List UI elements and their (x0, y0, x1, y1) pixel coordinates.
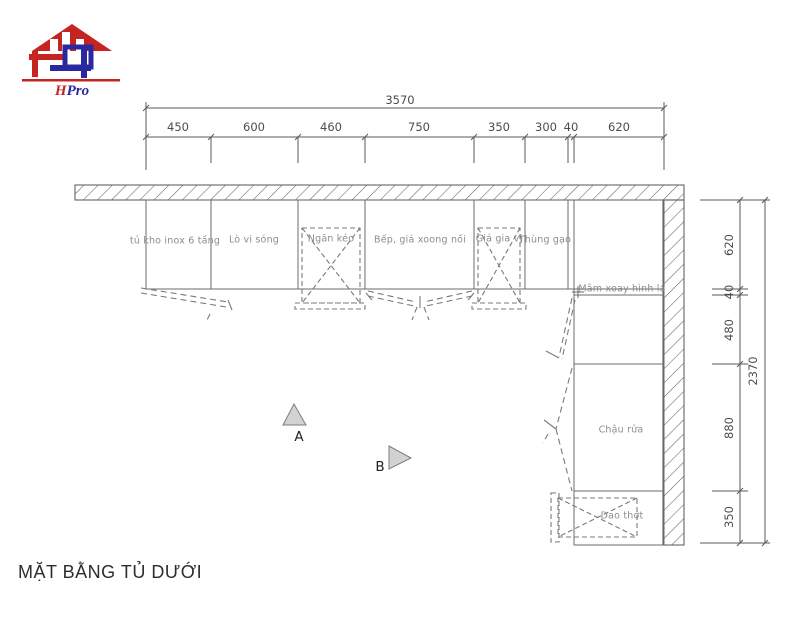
dim-right-seg-40: 40 (722, 285, 736, 300)
dimension-ticks (143, 105, 667, 140)
door-swing-lines (141, 288, 575, 491)
cabinet-label-chau-rua: Chậu rửa (599, 425, 644, 436)
cabinet-label-dao-thot: Dao thớt (601, 511, 644, 522)
hpro-house-icon (22, 24, 120, 82)
hpro-logo-text: HPro (54, 83, 89, 99)
dim-right-seg-880: 880 (722, 417, 736, 439)
cabinet-label-gia-gia-vi: Giá gia vị (476, 234, 523, 245)
cabinet-label-bep: Bếp, giá xoong nồi (374, 235, 466, 246)
marker-a-label: A (294, 429, 303, 445)
cabinet-label-tu-kho: tủ kho inox 6 tầng (130, 236, 220, 247)
blueprint-canvas: HPro tủ kho inox 6 tầng Lò vi sóng Ngăn … (0, 0, 800, 635)
marker-b-triangle (389, 446, 411, 469)
dim-top-total: 3570 (385, 93, 414, 107)
cabinet-label-thung-gao: Thùng gạo (519, 235, 571, 246)
dim-top-seg-600: 600 (243, 120, 265, 134)
dim-top-seg-450: 450 (167, 120, 189, 134)
dim-top-seg-40: 40 (564, 120, 579, 134)
dim-top-seg-620: 620 (608, 120, 630, 134)
marker-b-label: B (375, 459, 384, 475)
dim-right-total: 2370 (746, 356, 760, 385)
dim-top-seg-300: 300 (535, 120, 557, 134)
logo-text-pro: Pro (67, 83, 90, 99)
dim-right-seg-480: 480 (722, 319, 736, 341)
dim-right-seg-620: 620 (722, 234, 736, 256)
marker-a-triangle (283, 404, 306, 425)
dim-right-seg-350: 350 (722, 506, 736, 528)
dim-top-seg-350: 350 (488, 120, 510, 134)
dashed-drawer-boxes (295, 228, 637, 542)
top-dimension-lines (143, 102, 667, 170)
top-wall (75, 185, 684, 200)
right-wall (663, 200, 684, 545)
cabinet-outlines (146, 200, 664, 545)
hpro-logo: HPro (20, 13, 130, 103)
cabinet-label-ngan-keo: Ngăn kéo (308, 234, 354, 245)
dim-top-seg-460: 460 (320, 120, 342, 134)
cabinet-label-lo-vi-song: Lò vi sóng (229, 235, 279, 246)
dim-top-seg-750: 750 (408, 120, 430, 134)
right-cabinet-column (574, 200, 664, 545)
page-title: MẶT BẰNG TỦ DƯỚI (18, 562, 202, 583)
cabinet-label-mam-xoay: Mâm xoay hình lá (578, 284, 665, 295)
